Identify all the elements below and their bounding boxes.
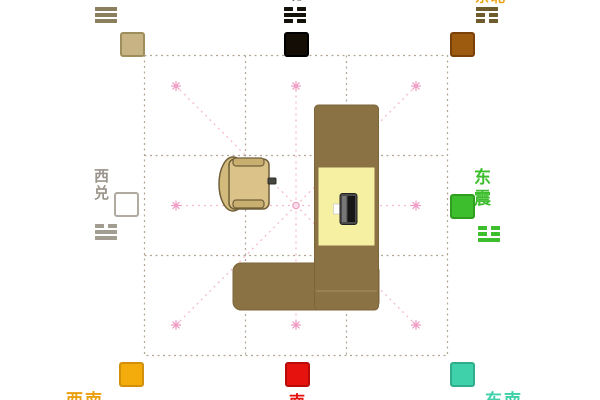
- direction-square-southeast[interactable]: [450, 362, 475, 387]
- direction-label-south: 南: [289, 388, 307, 400]
- marker-northeast: 东北: [448, 0, 518, 62]
- direction-square-north[interactable]: [284, 32, 309, 57]
- direction-label-southwest: 西南: [66, 386, 104, 400]
- chair-armrest-bottom: [233, 200, 264, 208]
- chair-lever: [268, 178, 276, 184]
- marker-east: 东震: [448, 166, 508, 246]
- marker-west: 西兑: [90, 166, 150, 246]
- trigram-qian-icon: [95, 7, 117, 25]
- direction-square-south[interactable]: [285, 362, 310, 387]
- office-chair[interactable]: [219, 157, 276, 211]
- marker-southeast: 东南: [448, 360, 538, 400]
- direction-square-northeast[interactable]: [450, 32, 475, 57]
- marker-southwest: 西南: [66, 360, 156, 400]
- direction-label-northwest: 西北: [94, 0, 113, 2]
- direction-square-southwest[interactable]: [119, 362, 144, 387]
- trigram-kan-icon: [284, 7, 306, 25]
- direction-label-west: 西兑: [92, 168, 111, 202]
- computer-paper: [334, 204, 341, 214]
- direction-square-west[interactable]: [114, 192, 139, 217]
- direction-label-northeast: 东北: [475, 0, 507, 7]
- marker-south: 南: [283, 360, 323, 400]
- center-marker: [293, 202, 299, 208]
- marker-north: 北: [282, 0, 322, 62]
- trigram-zhen-icon: [478, 226, 500, 244]
- direction-label-north: 北: [286, 0, 305, 2]
- feng-shui-diagram: 西北 北 东北 西兑 东震 西南 南 东南: [0, 0, 600, 400]
- trigram-gen-icon: [476, 7, 498, 25]
- chair-armrest-top: [233, 158, 264, 166]
- direction-square-northwest[interactable]: [120, 32, 145, 57]
- direction-square-east[interactable]: [450, 194, 475, 219]
- direction-label-east: 东震: [473, 168, 492, 210]
- marker-northwest: 西北: [92, 0, 152, 62]
- computer-keyboard: [342, 196, 347, 222]
- direction-label-southeast: 东南: [485, 386, 523, 400]
- trigram-dui-icon: [95, 224, 117, 242]
- computer-screen: [348, 196, 356, 222]
